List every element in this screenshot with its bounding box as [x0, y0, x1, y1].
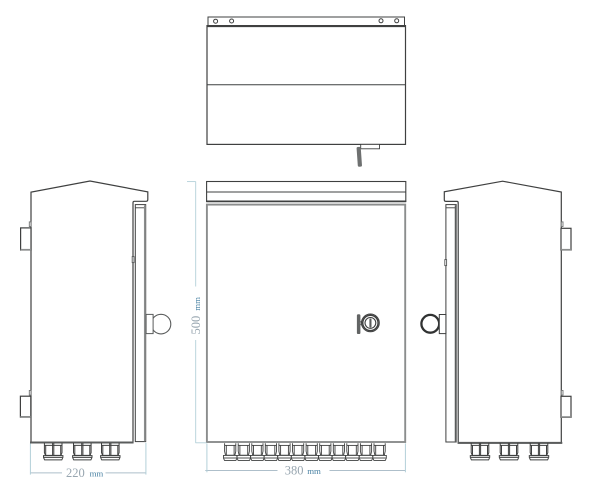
svg-text:220: 220: [66, 466, 85, 480]
svg-text:mm: mm: [90, 469, 104, 479]
svg-text:mm: mm: [307, 466, 321, 476]
svg-text:380: 380: [285, 464, 304, 478]
